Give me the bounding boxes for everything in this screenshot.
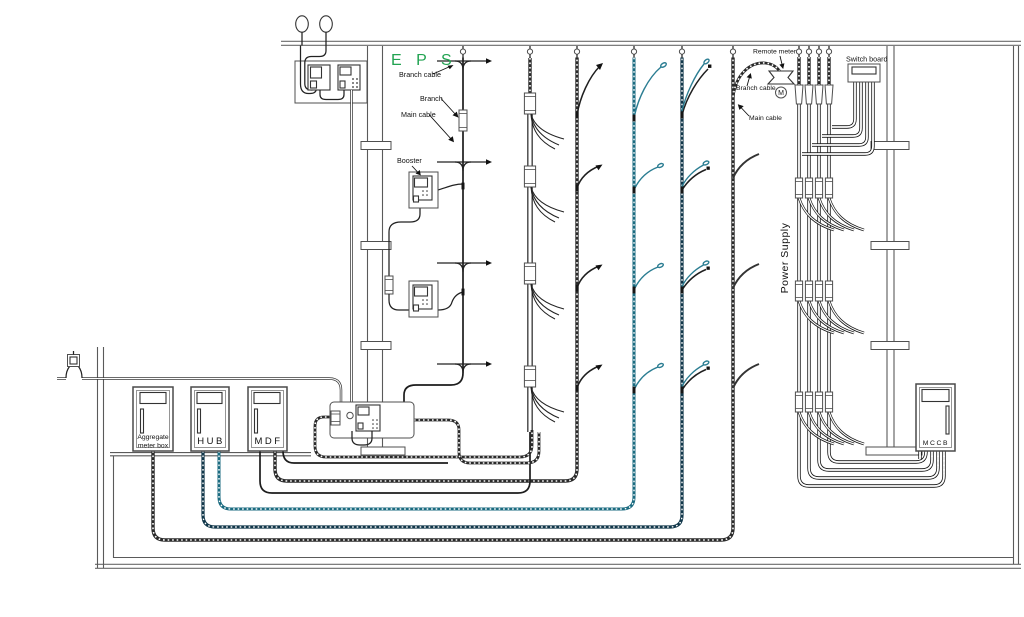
- cabinet-window: [140, 393, 166, 404]
- shelf-line: [110, 453, 311, 456]
- eps-booster-chain: [330, 46, 492, 445]
- left-shaft-foot: [361, 447, 405, 455]
- right-shaft-foot: [866, 447, 922, 455]
- booster-1: [409, 172, 438, 208]
- floor-mark: [361, 242, 391, 250]
- hub-label: HUB: [197, 436, 225, 447]
- power-supply-label: Power Supply: [779, 222, 791, 293]
- cabinet-window: [922, 390, 949, 402]
- cabinet-window: [197, 393, 222, 404]
- aggregate-meter-box: Aggregate meter box: [133, 387, 173, 451]
- cabinet-slit: [946, 406, 949, 434]
- diagram-canvas: M Aggregate meter box HUB MDF MCCB E P S…: [0, 0, 1024, 617]
- hub-cabinet: HUB: [191, 387, 229, 451]
- floor-mark: [871, 342, 909, 350]
- riser-runs: [315, 46, 780, 463]
- switch-board: [848, 64, 880, 82]
- main-cable-label: Main cable: [401, 110, 436, 119]
- floor-mark: [361, 142, 391, 150]
- mdf-cabinet: MDF: [248, 387, 287, 451]
- booster-label: Booster: [397, 156, 422, 165]
- branch-cable-label: Branch cable: [399, 70, 441, 79]
- aggregate-label-2: meter box: [138, 443, 169, 450]
- wiring-diagram: M Aggregate meter box HUB MDF MCCB E P S…: [0, 0, 1024, 617]
- meter-m-symbol: M: [778, 90, 784, 97]
- antenna-lamp-icon: [320, 16, 333, 32]
- branch-label: Branch: [420, 94, 443, 103]
- branch-run-5-pair: [679, 46, 711, 393]
- building-structure: [95, 41, 1021, 568]
- floor-mark: [871, 242, 909, 250]
- cabinet-slit: [198, 409, 201, 433]
- meter-main-run: [730, 46, 780, 388]
- ceiling-line: [281, 41, 1021, 45]
- cabinet-slit: [141, 409, 144, 433]
- right-boundary-wall: [1014, 46, 1019, 564]
- booster-2: [409, 281, 438, 317]
- distribution-unit: [330, 402, 414, 445]
- branch-cable-right-label: Branch cable: [736, 85, 776, 92]
- eps-title: E P S: [391, 52, 457, 69]
- inline-connector: [385, 276, 393, 294]
- switch-board-label: Switch board: [846, 55, 888, 64]
- main-cable-right-label: Main cable: [749, 115, 782, 122]
- floor-line: [95, 564, 1021, 568]
- inline-connector: [331, 411, 340, 425]
- cabinet-window: [254, 393, 280, 404]
- branch-run-4-teal: [631, 46, 667, 393]
- floor-mark: [871, 142, 909, 150]
- left-room-wall: [98, 347, 104, 568]
- mdf-label: MDF: [254, 436, 282, 447]
- remote-meter-label: Remote meter: [753, 49, 797, 56]
- cabinet-slit: [255, 409, 258, 433]
- mccb-cabinet: MCCB: [916, 384, 955, 451]
- mccb-label: MCCB: [923, 440, 949, 447]
- aggregate-label-1: Aggregate: [137, 434, 169, 441]
- antenna-lamp-icon: [296, 16, 309, 32]
- rooftop-antenna-unit: [295, 16, 367, 413]
- floor-mark: [361, 342, 391, 350]
- junction-point: [347, 412, 353, 418]
